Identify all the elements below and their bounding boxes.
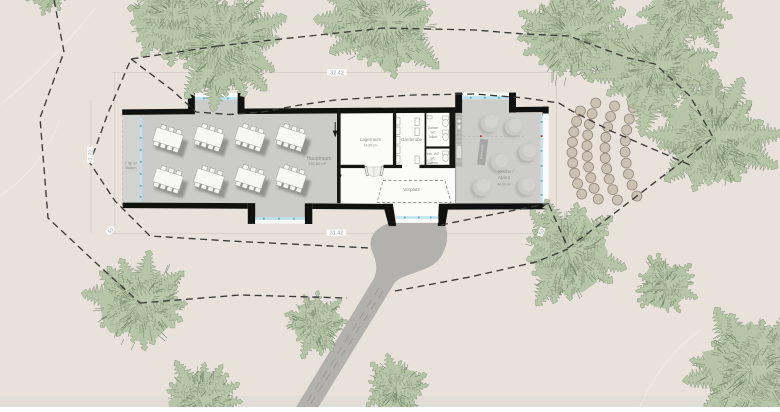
- svg-text:Herren: Herren: [428, 161, 438, 165]
- svg-text:7.56 m²: 7.56 m²: [125, 162, 138, 166]
- svg-text:Vorplatz: Vorplatz: [403, 187, 420, 192]
- svg-text:WC: WC: [430, 131, 436, 135]
- svg-text:Apéro: Apéro: [498, 175, 511, 180]
- svg-text:32.42: 32.42: [330, 70, 344, 76]
- svg-text:Toilett.: Toilett.: [428, 135, 437, 139]
- svg-text:31.42: 31.42: [330, 231, 344, 237]
- svg-text:44.00 m²: 44.00 m²: [497, 183, 512, 187]
- svg-text:Küche /: Küche /: [498, 169, 514, 174]
- svg-text:132.60 m²: 132.60 m²: [308, 161, 327, 166]
- svg-text:Balkon: Balkon: [126, 166, 137, 170]
- svg-text:Lagerraum: Lagerraum: [360, 137, 382, 142]
- svg-text:Damen: Damen: [428, 126, 439, 130]
- svg-text:7.22: 7.22: [88, 150, 94, 161]
- svg-text:Garderobe: Garderobe: [401, 137, 423, 142]
- svg-text:beh. WC: beh. WC: [427, 152, 440, 156]
- svg-text:14.89 m²: 14.89 m²: [364, 144, 379, 148]
- svg-text:WC: WC: [430, 157, 436, 161]
